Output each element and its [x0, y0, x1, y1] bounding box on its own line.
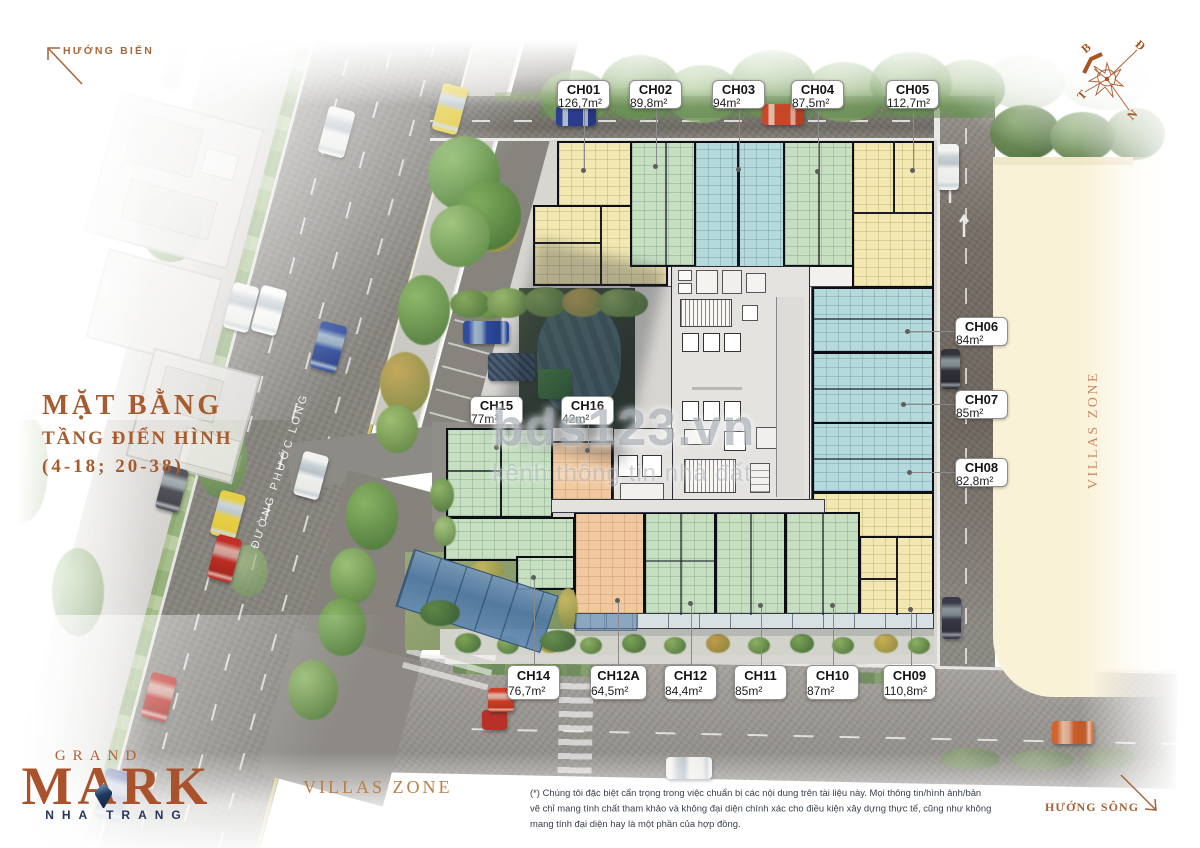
- svg-text:N: N: [1124, 107, 1140, 123]
- svg-text:B: B: [1078, 40, 1093, 56]
- svg-text:Đ: Đ: [1132, 37, 1148, 53]
- svg-text:T: T: [1074, 87, 1090, 102]
